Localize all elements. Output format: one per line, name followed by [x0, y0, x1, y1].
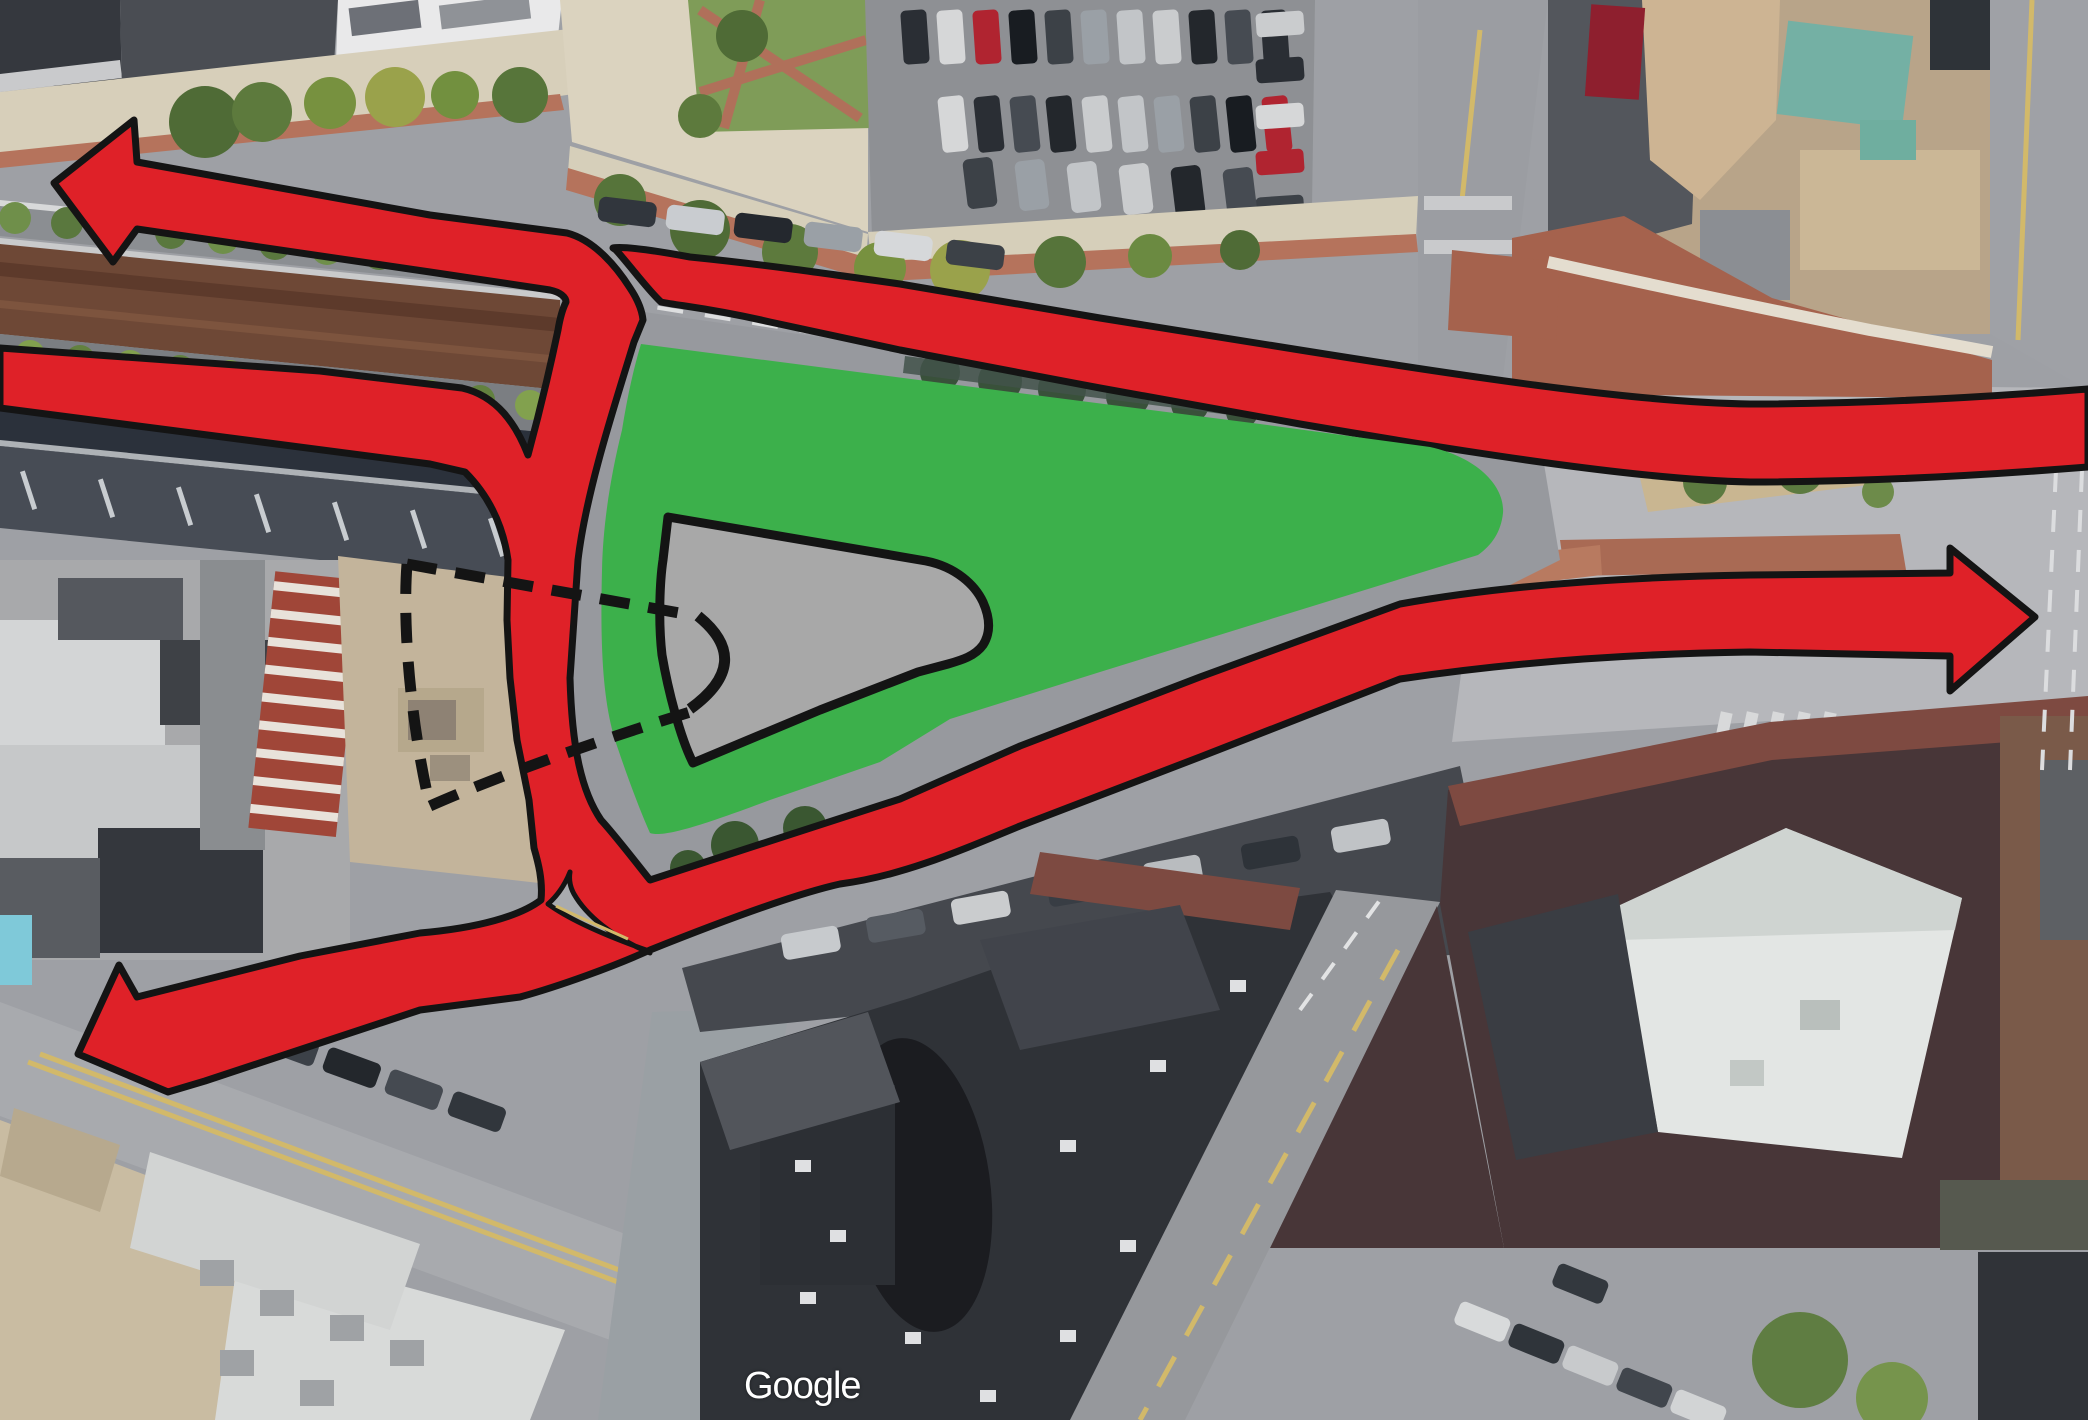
- svg-text:Google: Google: [744, 1365, 861, 1407]
